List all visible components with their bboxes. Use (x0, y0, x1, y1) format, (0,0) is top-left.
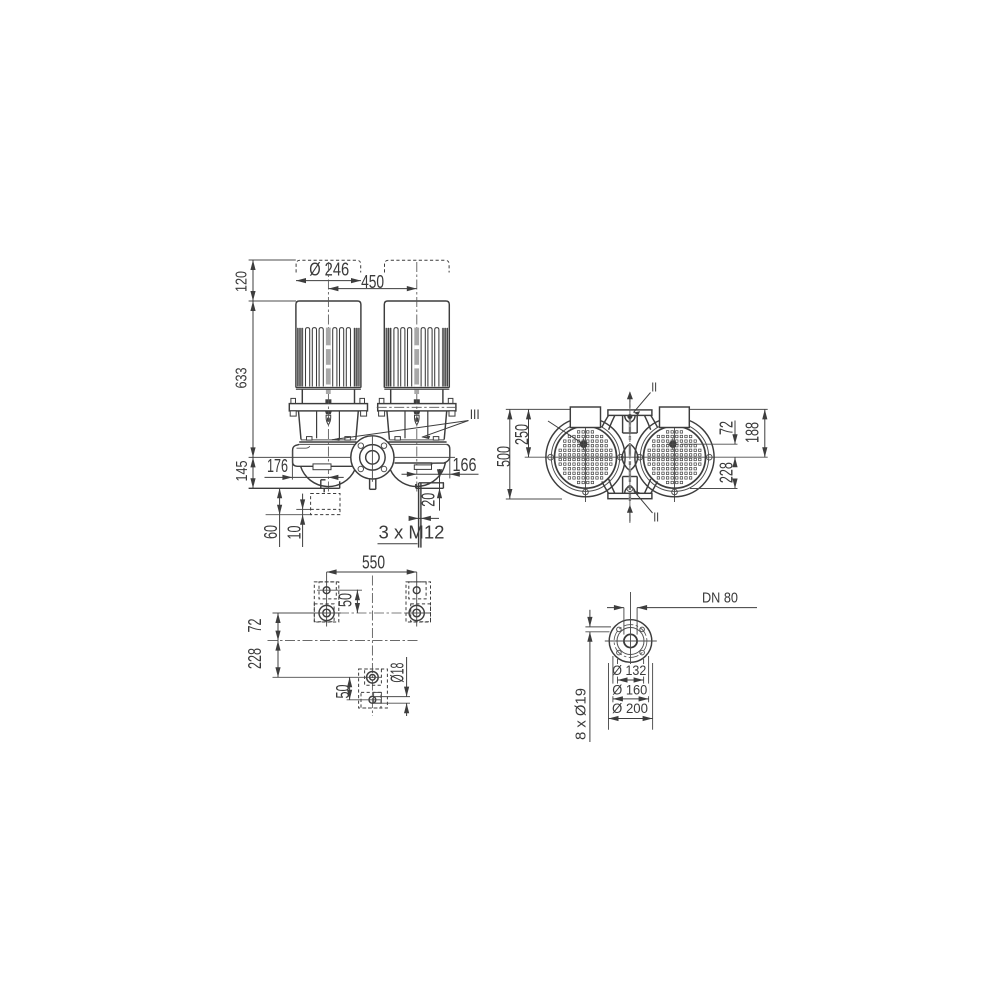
svg-text:II: II (653, 510, 659, 525)
svg-text:Ø 200: Ø 200 (612, 701, 648, 716)
svg-text:50: 50 (336, 593, 356, 607)
svg-text:145: 145 (234, 460, 251, 481)
svg-text:8 x Ø19: 8 x Ø19 (573, 688, 590, 740)
svg-text:550: 550 (362, 553, 385, 573)
svg-text:250: 250 (512, 424, 532, 445)
svg-text:500: 500 (494, 446, 514, 467)
svg-text:III: III (470, 406, 480, 422)
svg-text:176: 176 (267, 456, 288, 476)
svg-text:3 x M12: 3 x M12 (379, 523, 445, 543)
svg-text:166: 166 (453, 455, 477, 475)
svg-text:50: 50 (333, 685, 353, 699)
svg-text:Ø 132: Ø 132 (612, 663, 646, 678)
svg-text:72: 72 (245, 619, 265, 633)
svg-text:Ø18: Ø18 (388, 663, 408, 683)
svg-text:633: 633 (234, 367, 251, 388)
svg-text:II: II (651, 380, 657, 395)
svg-text:10: 10 (285, 526, 305, 540)
svg-text:228: 228 (717, 462, 737, 483)
svg-text:450: 450 (361, 272, 384, 292)
svg-text:60: 60 (261, 525, 281, 539)
svg-text:120: 120 (234, 271, 251, 292)
svg-text:228: 228 (245, 648, 265, 669)
svg-text:72: 72 (717, 421, 737, 435)
svg-text:188: 188 (743, 422, 763, 443)
svg-text:Ø 246: Ø 246 (309, 260, 349, 280)
svg-text:Ø 160: Ø 160 (612, 682, 647, 697)
svg-text:DN 80: DN 80 (702, 589, 738, 606)
svg-text:20: 20 (419, 493, 439, 507)
